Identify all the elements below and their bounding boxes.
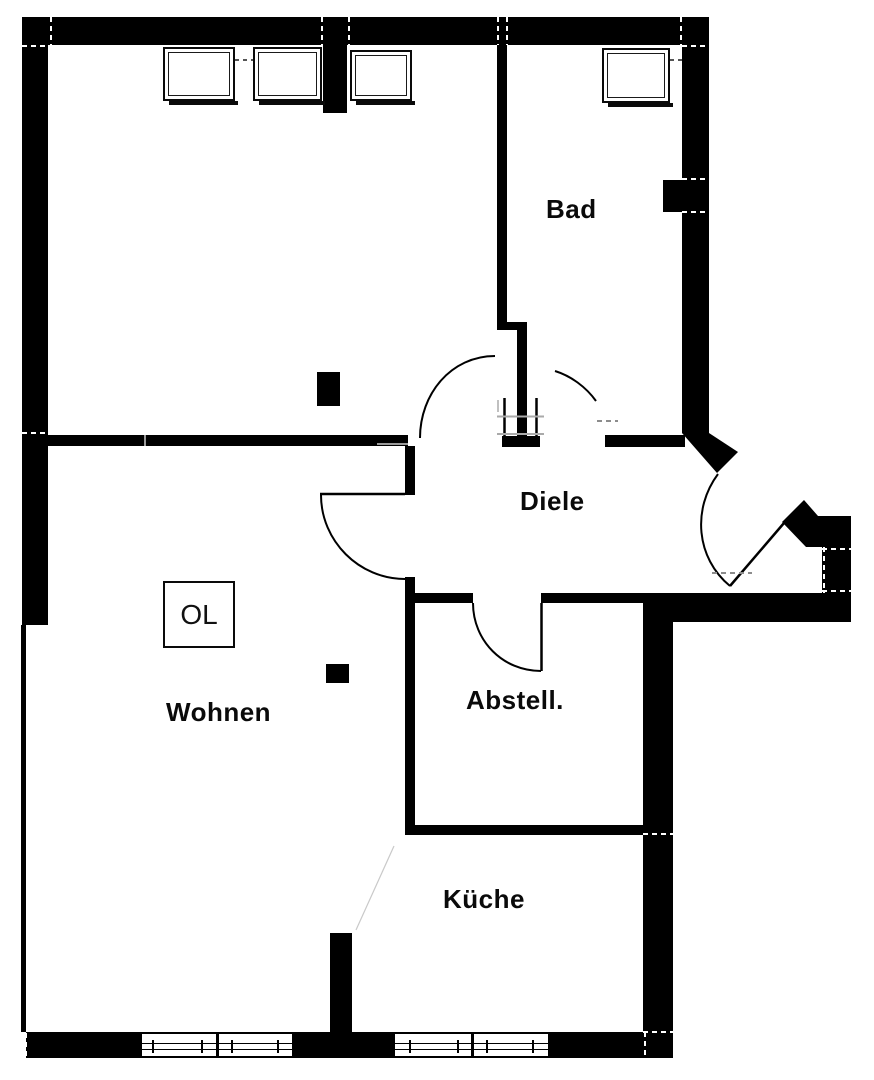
door-symbols-layer [0, 0, 874, 1080]
door-arc-entrance [701, 474, 730, 586]
room-label-kueche: Küche [443, 884, 525, 915]
dash-mark [22, 45, 48, 47]
dash-mark [22, 432, 48, 434]
dash-mark-gray [670, 59, 683, 61]
dash-mark [680, 17, 682, 45]
dash-mark [348, 17, 350, 45]
room-label-bad: Bad [546, 194, 597, 225]
door-arc-wohnen [321, 495, 405, 579]
dash-mark [682, 178, 709, 180]
wall-entrance-diagonal-right [782, 500, 851, 547]
dash-mark [822, 590, 851, 592]
dash-mark [50, 17, 52, 45]
dash-mark [643, 833, 673, 835]
dash-mark-gray [712, 572, 752, 574]
dash-mark [643, 1031, 673, 1033]
dash-mark [321, 17, 323, 45]
door-arc-bad [555, 371, 596, 401]
room-label-diele: Diele [520, 486, 585, 517]
room-label-wohnen: Wohnen [166, 697, 271, 728]
room-label-abstell: Abstell. [466, 685, 564, 716]
dash-mark [823, 547, 825, 593]
dash-mark [25, 1033, 27, 1057]
wall-entrance-diagonal-left [682, 433, 738, 473]
dash-mark-gray [235, 59, 253, 61]
dash-mark [644, 1032, 646, 1058]
door-leaf-entrance [730, 523, 784, 586]
gray-tick [377, 443, 408, 445]
dash-mark [497, 17, 499, 45]
dash-mark-gray [597, 420, 618, 422]
floor-plan: OL [0, 0, 874, 1080]
door-arc-abstell [473, 603, 541, 671]
dash-mark [682, 45, 709, 47]
dash-mark [506, 17, 508, 45]
construction-line-kueche [356, 846, 394, 930]
gray-tick [144, 435, 146, 446]
door-arc-bedroom [420, 356, 495, 438]
dash-mark [682, 211, 709, 213]
dash-mark [822, 548, 851, 550]
